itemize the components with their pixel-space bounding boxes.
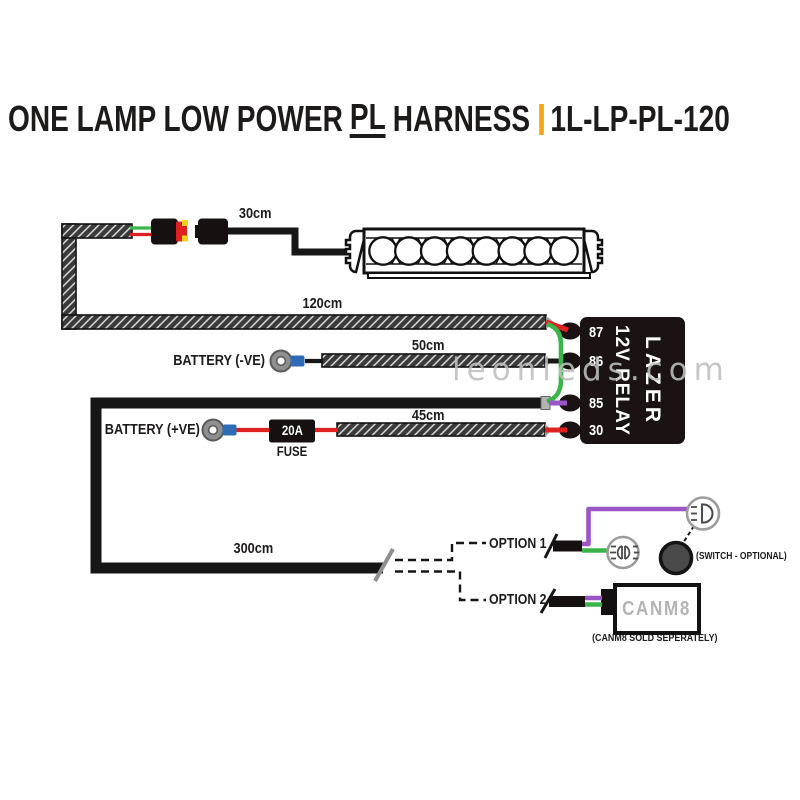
watermark: leonleds.com: [452, 352, 730, 388]
switch-button: [661, 543, 692, 574]
option-dashed-routes: [395, 543, 486, 600]
cable-120cm: [62, 315, 546, 329]
ring-terminal-negative: [271, 351, 305, 372]
option1-dashed-route: [395, 543, 486, 560]
title-product-code: 1L-LP-PL-120: [550, 98, 729, 140]
connector-female: [151, 219, 178, 245]
side-light-icon: [608, 537, 640, 568]
label-30cm: 30cm: [205, 205, 305, 222]
page-title: ONE LAMP LOW POWER PL HARNESS 1L-LP-PL-1…: [8, 98, 730, 140]
label-option1: OPTION 1: [489, 536, 557, 552]
label-battery-negative: BATTERY (-VE): [100, 352, 265, 369]
light-bar-base: [368, 273, 590, 278]
ring-terminal-positive: [203, 420, 237, 441]
led-light-bar: [346, 229, 602, 278]
crimp-sleeve-negative: [291, 356, 305, 367]
purple-wire-option1: [582, 509, 687, 544]
option2-dashed-route: [395, 572, 486, 601]
label-option2: OPTION 2: [489, 592, 557, 608]
title-separator-bar: [539, 104, 544, 135]
lamp-connector-pair: [151, 219, 228, 245]
crimp-sleeve-positive: [223, 425, 237, 436]
label-45cm: 45cm: [378, 407, 478, 424]
relay-terminal-30: 30: [589, 422, 603, 439]
fuse-rating-label: 20A: [269, 423, 315, 438]
wire-30cm: [228, 231, 350, 252]
canm8-box: CANM8: [613, 583, 701, 635]
label-300cm: 300cm: [203, 540, 303, 557]
diagram-canvas: ONE LAMP LOW POWER PL HARNESS 1L-LP-PL-1…: [0, 0, 800, 800]
relay-terminal-87: 87: [589, 324, 603, 341]
label-120cm: 120cm: [272, 295, 372, 312]
title-text: ONE LAMP LOW POWER: [8, 98, 343, 140]
relay-terminal-85: 85: [589, 395, 603, 412]
label-battery-positive: BATTERY (+VE): [50, 421, 200, 438]
fuse-label: FUSE: [262, 444, 322, 459]
main-beam-icon: [687, 498, 719, 530]
cable-lamp-stub: [62, 224, 132, 238]
cable-45cm: [337, 423, 545, 436]
canm8-sold-separately-note: (CANM8 SOLD SEPERATELY): [565, 632, 745, 644]
cable-left-vertical: [62, 224, 76, 329]
canm8-label: CANM8: [623, 598, 692, 621]
connector-male: [198, 219, 228, 245]
switch-dashed-link: [683, 526, 694, 543]
title-harness: HARNESS: [393, 98, 530, 140]
title-pl-underlined: PL: [350, 100, 386, 138]
switch-optional-note: (SWITCH - OPTIONAL): [696, 551, 800, 562]
